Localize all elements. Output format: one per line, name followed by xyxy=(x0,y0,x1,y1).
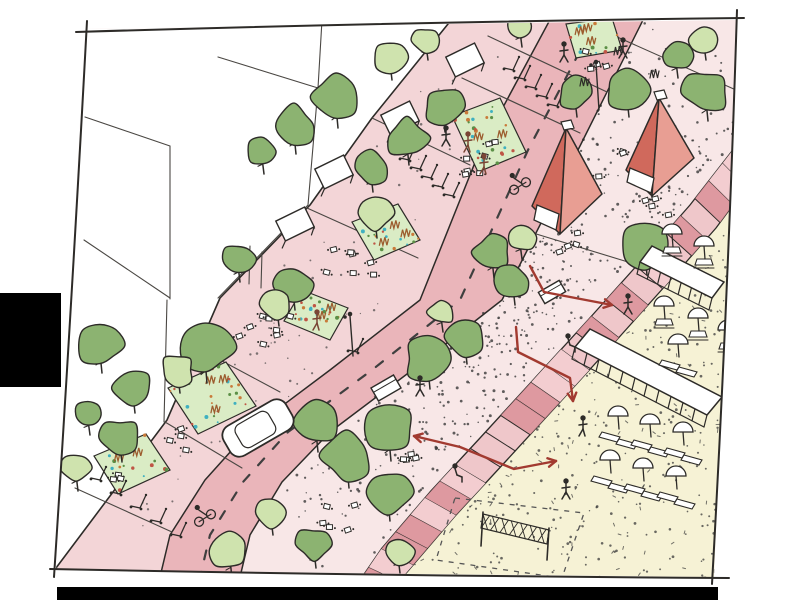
step-rung-line xyxy=(736,146,759,170)
flower-dot xyxy=(603,50,607,54)
table-top xyxy=(371,272,377,277)
table-top xyxy=(462,171,469,177)
umbrella-pole xyxy=(728,330,729,343)
table-top xyxy=(587,66,593,71)
flower-dot xyxy=(335,316,339,320)
flower-dot xyxy=(511,149,514,152)
flower-dot xyxy=(505,124,508,127)
picnic-table xyxy=(719,343,737,349)
lamp-head xyxy=(348,312,353,317)
table-top xyxy=(348,250,354,255)
flower-dot xyxy=(230,385,233,388)
flower-dot xyxy=(361,229,365,233)
table-top xyxy=(351,502,358,508)
street-sketch-canvas xyxy=(0,0,800,600)
flower-dot xyxy=(213,415,215,417)
flower-dot xyxy=(238,396,241,399)
flower-dot xyxy=(569,36,572,39)
figure-arms xyxy=(562,487,570,488)
table-top xyxy=(183,447,190,453)
flower-dot xyxy=(211,402,213,404)
flower-dot xyxy=(204,415,208,419)
figure-arms xyxy=(442,134,450,135)
table-top xyxy=(330,246,337,252)
flower-dot xyxy=(495,161,499,165)
table-top xyxy=(259,313,266,319)
table-top xyxy=(603,63,610,69)
flower-dot xyxy=(471,118,474,121)
flower-dot xyxy=(143,475,145,477)
tree-canopy xyxy=(75,402,101,426)
flower-dot xyxy=(153,460,156,463)
flower-dot xyxy=(295,313,297,315)
table-top xyxy=(574,230,581,236)
flower-dot xyxy=(118,466,121,469)
flower-dot xyxy=(468,121,470,123)
flower-dot xyxy=(579,50,583,54)
figure-arms xyxy=(560,50,568,51)
flower-dot xyxy=(210,395,213,398)
figure-arms xyxy=(624,302,632,303)
flower-dot xyxy=(490,110,493,113)
flower-dot xyxy=(235,392,238,395)
picnic-table xyxy=(655,319,673,325)
flower-dot xyxy=(382,231,384,233)
flower-dot xyxy=(228,393,231,396)
flower-dot xyxy=(217,421,219,423)
flower-dot xyxy=(485,116,488,119)
table-top xyxy=(110,477,117,482)
flower-dot xyxy=(503,146,506,149)
flower-dot xyxy=(591,46,595,50)
table-top xyxy=(649,203,656,209)
table-top xyxy=(412,455,419,461)
flower-dot xyxy=(150,463,154,467)
lamp-head xyxy=(594,60,599,65)
table-top xyxy=(273,327,280,332)
bottom-black-bar xyxy=(57,587,718,600)
flower-dot xyxy=(605,46,608,49)
flower-dot xyxy=(501,153,504,156)
flower-dot xyxy=(399,238,402,241)
flower-dot xyxy=(490,116,493,119)
flower-dot xyxy=(191,423,193,425)
flower-dot xyxy=(304,318,308,322)
figure-arms xyxy=(313,318,321,319)
left-black-bar xyxy=(0,293,61,387)
flower-dot xyxy=(245,403,247,405)
table-top xyxy=(166,437,173,443)
flower-dot xyxy=(491,106,493,108)
table-top xyxy=(323,503,330,509)
flower-dot xyxy=(302,306,305,309)
flower-dot xyxy=(406,243,408,245)
flower-dot xyxy=(373,242,375,244)
picnic-table xyxy=(663,247,681,253)
flower-dot xyxy=(310,297,313,300)
flower-dot xyxy=(412,240,415,243)
flower-dot xyxy=(595,52,597,54)
flower-dot xyxy=(237,383,240,386)
tree-canopy xyxy=(508,14,532,37)
step-dark xyxy=(736,128,772,170)
flower-dot xyxy=(309,307,313,311)
picnic-table xyxy=(689,331,707,337)
flower-dot xyxy=(321,308,324,311)
flower-dot xyxy=(233,402,236,405)
flower-dot xyxy=(300,301,303,304)
flower-dot xyxy=(491,148,495,152)
flower-dot xyxy=(123,465,125,467)
flower-dot xyxy=(326,318,328,320)
flower-dot xyxy=(373,234,375,236)
figure-arms xyxy=(579,424,587,425)
table-top xyxy=(350,271,356,276)
flower-dot xyxy=(367,235,369,237)
tree-canopy xyxy=(365,405,412,450)
flower-dot xyxy=(110,467,113,470)
flower-dot xyxy=(143,434,146,437)
flower-dot xyxy=(593,22,597,26)
figure-arms xyxy=(480,162,488,163)
flower-dot xyxy=(318,300,321,303)
flower-dot xyxy=(474,128,477,131)
table-top xyxy=(367,259,374,265)
flower-dot xyxy=(411,233,414,236)
flower-dot xyxy=(298,318,301,321)
table-top xyxy=(652,196,659,202)
flower-dot xyxy=(169,390,171,392)
table-top xyxy=(582,48,589,54)
table-top xyxy=(260,341,267,347)
flower-dot xyxy=(380,248,384,252)
table-top xyxy=(665,212,672,218)
flower-dot xyxy=(173,388,175,390)
figure-arms xyxy=(416,384,424,385)
table-top xyxy=(642,197,649,203)
table-top xyxy=(320,520,326,525)
table-top xyxy=(178,433,185,439)
flower-dot xyxy=(313,304,316,307)
flower-dot xyxy=(194,425,198,429)
flower-dot xyxy=(131,466,134,469)
picnic-table xyxy=(695,259,713,265)
table-top xyxy=(323,269,330,275)
flower-dot xyxy=(471,135,474,138)
sketch-page xyxy=(0,0,800,600)
tent-cap xyxy=(561,120,574,130)
sketch-content xyxy=(0,0,800,600)
lamp-head xyxy=(589,63,593,67)
flower-dot xyxy=(328,313,330,315)
table-top xyxy=(492,139,498,144)
table-top xyxy=(596,174,602,179)
flower-dot xyxy=(616,34,618,36)
flower-dot xyxy=(393,247,396,250)
planting-bed xyxy=(566,18,622,58)
tent-cap xyxy=(654,90,667,100)
table-top xyxy=(400,457,406,462)
flower-dot xyxy=(466,118,470,122)
lamp-head xyxy=(343,315,347,319)
table-top xyxy=(326,525,332,530)
flower-dot xyxy=(165,468,169,472)
flower-dot xyxy=(465,111,469,115)
flower-dot xyxy=(417,237,419,239)
table-top xyxy=(464,156,470,161)
flower-dot xyxy=(477,157,480,160)
flower-dot xyxy=(186,405,190,409)
flower-dot xyxy=(108,454,111,457)
figure-arms xyxy=(464,140,472,141)
